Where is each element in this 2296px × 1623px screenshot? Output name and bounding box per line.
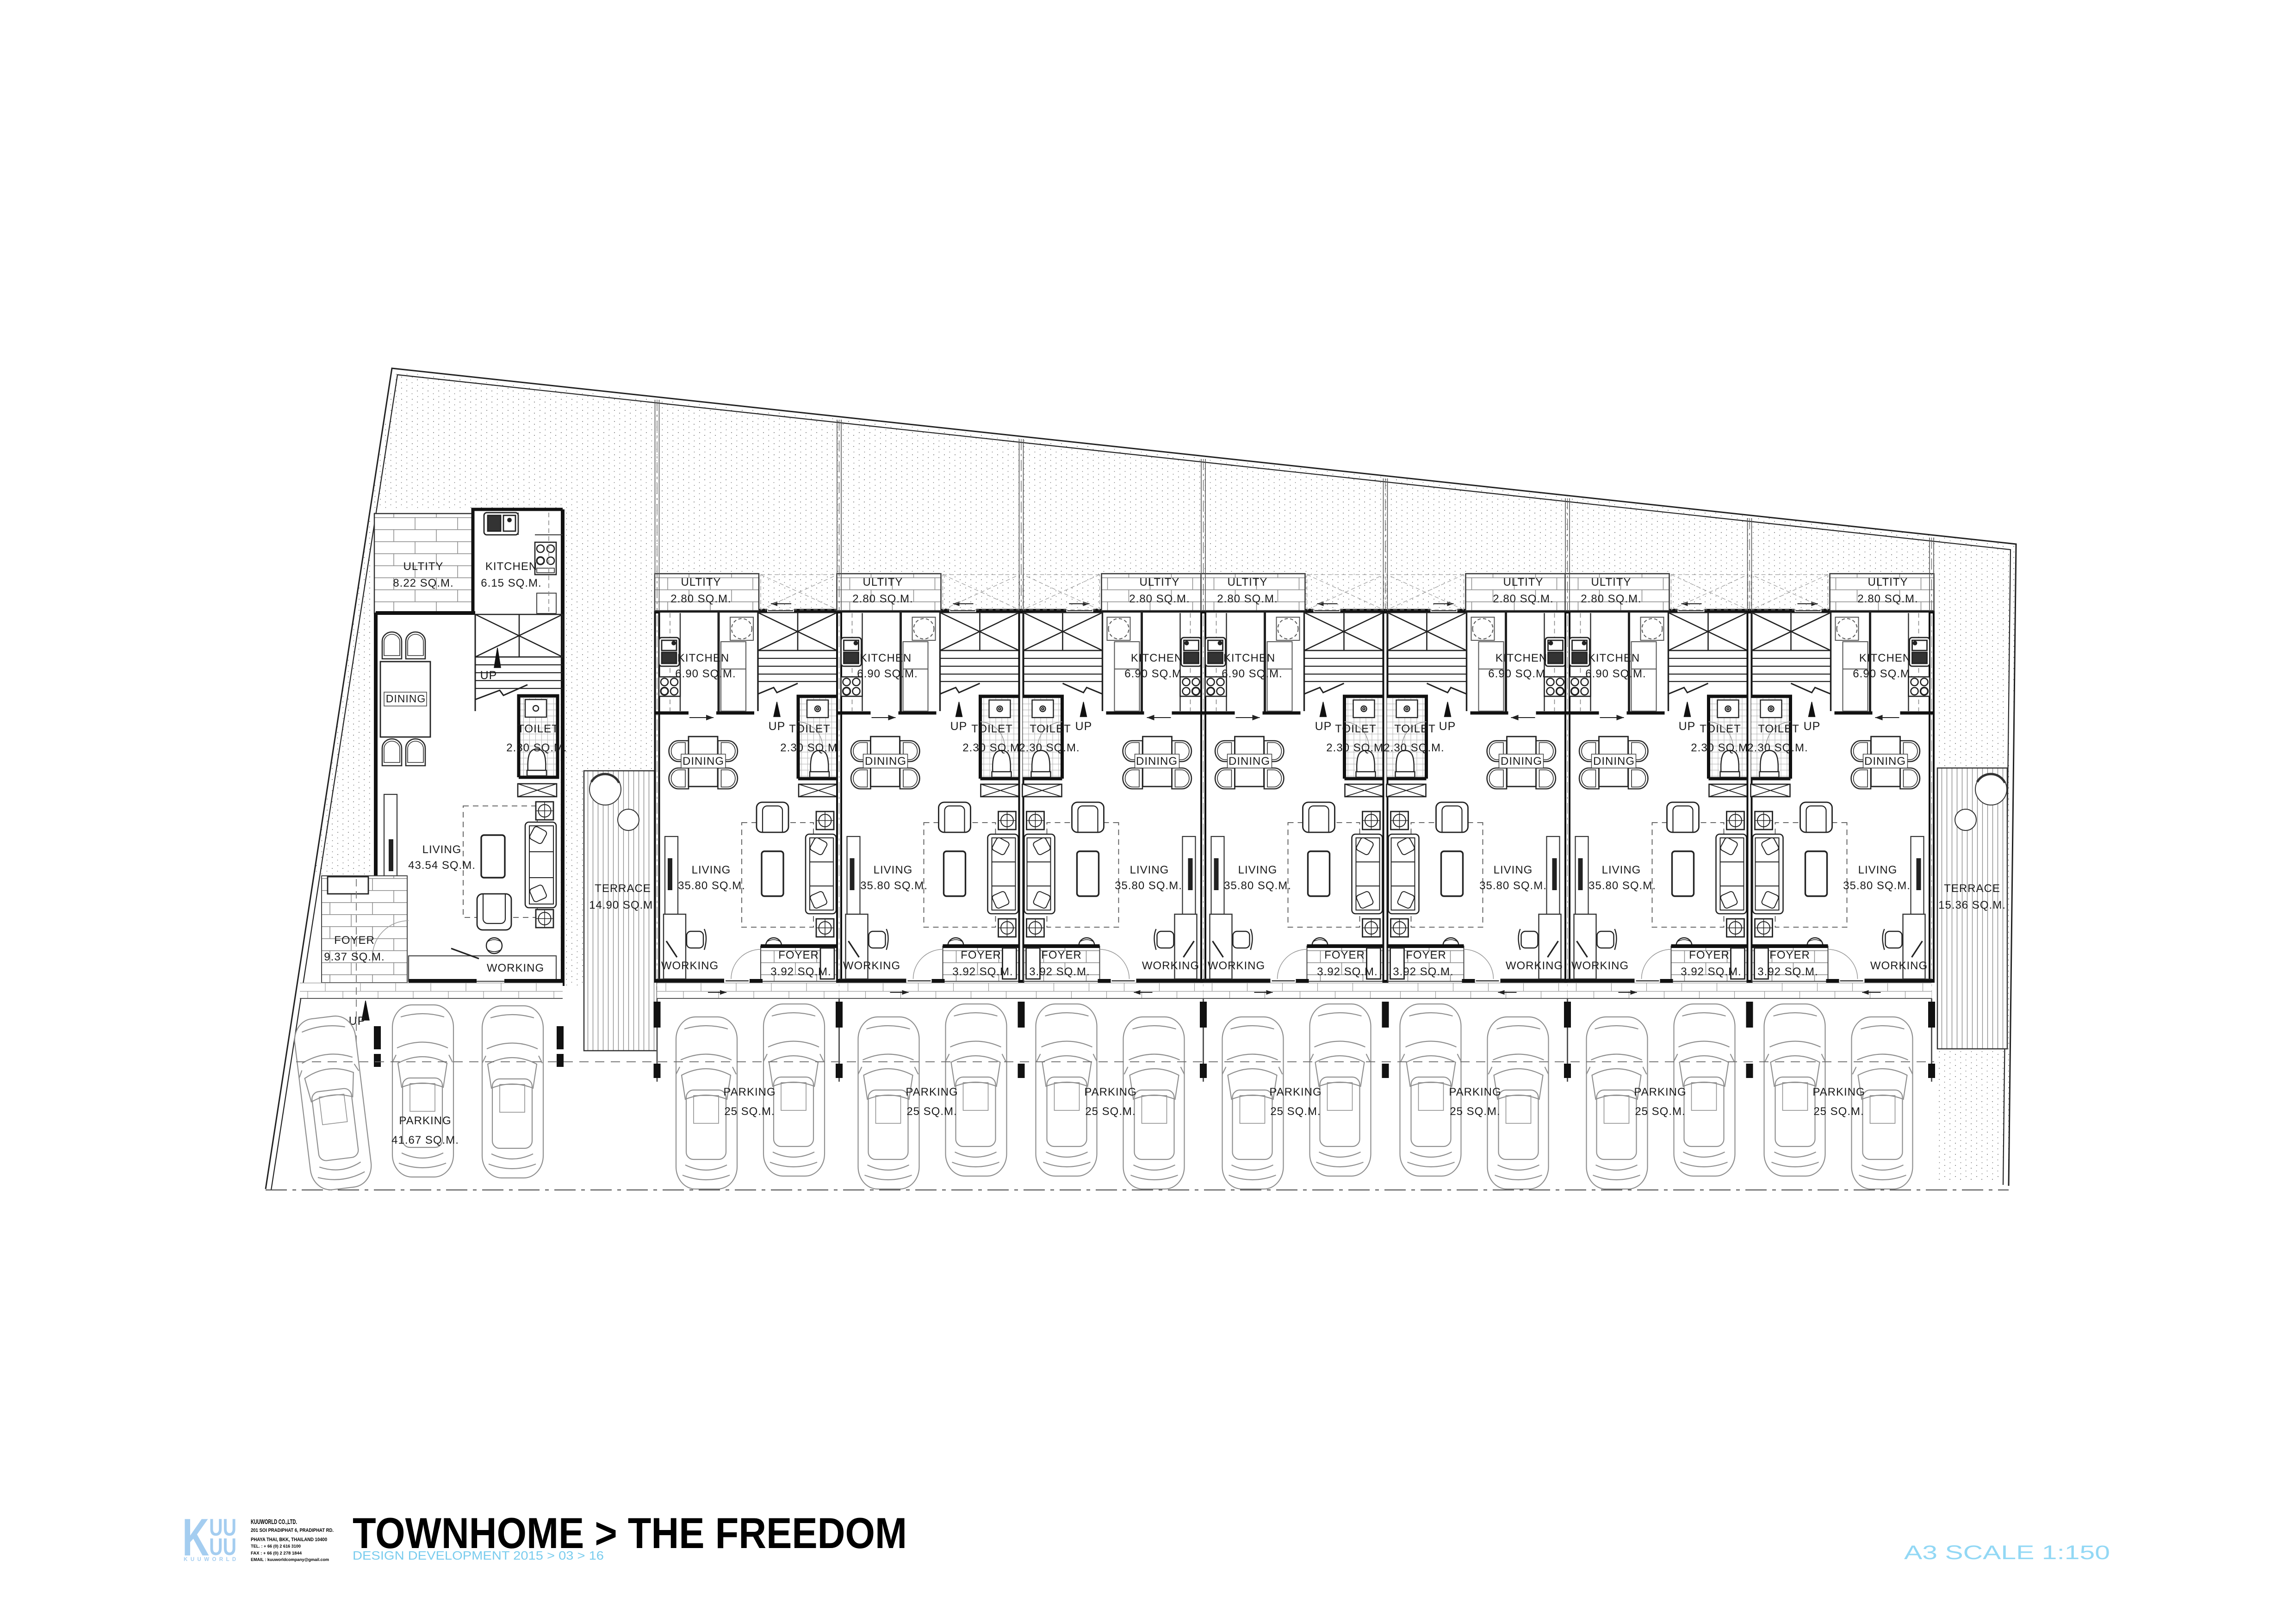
svg-text:TERRACE: TERRACE bbox=[595, 882, 651, 895]
svg-text:PARKING: PARKING bbox=[906, 1086, 958, 1098]
svg-text:25 SQ.M.: 25 SQ.M. bbox=[1450, 1105, 1500, 1118]
svg-text:201 SOI PRADIPHAT 6, PRADI: 201 SOI PRADIPHAT 6, PRADIPHAT RD. bbox=[251, 1528, 334, 1533]
svg-text:UP: UP bbox=[950, 720, 968, 733]
svg-text:WORKING: WORKING bbox=[661, 960, 719, 972]
svg-text:3.92 SQ.M.: 3.92 SQ.M. bbox=[770, 966, 831, 978]
svg-text:2.80 SQ.M.: 2.80 SQ.M. bbox=[1857, 593, 1918, 605]
svg-text:25 SQ.M.: 25 SQ.M. bbox=[1813, 1105, 1864, 1118]
svg-text:TOILET: TOILET bbox=[517, 723, 559, 735]
svg-text:9.37 SQ.M.: 9.37 SQ.M. bbox=[324, 951, 385, 963]
svg-text:ULTITY: ULTITY bbox=[863, 576, 903, 588]
svg-text:35.80 SQ.M.: 35.80 SQ.M. bbox=[860, 880, 928, 892]
svg-text:3.92 SQ.M.: 3.92 SQ.M. bbox=[1029, 966, 1090, 978]
svg-text:KUUWORLD CO.,LTD.: KUUWORLD CO.,LTD. bbox=[251, 1518, 297, 1526]
svg-text:UP: UP bbox=[769, 720, 786, 733]
svg-text:6.90 SQ.M.: 6.90 SQ.M. bbox=[857, 668, 918, 680]
svg-text:UP: UP bbox=[1315, 720, 1332, 733]
svg-text:EMAIL : kuuworldcompany@gmail.: EMAIL : kuuworldcompany@gmail.com bbox=[251, 1557, 329, 1562]
svg-text:DINING: DINING bbox=[1864, 755, 1906, 768]
svg-text:3.92 SQ.M.: 3.92 SQ.M. bbox=[1393, 966, 1453, 978]
svg-text:TOILET: TOILET bbox=[789, 723, 831, 735]
svg-text:ULTITY: ULTITY bbox=[1591, 576, 1632, 588]
svg-text:ULTITY: ULTITY bbox=[403, 560, 444, 573]
svg-text:LIVING: LIVING bbox=[1238, 864, 1278, 876]
svg-text:2.30 SQ.M.: 2.30 SQ.M. bbox=[1326, 742, 1387, 754]
svg-text:LIVING: LIVING bbox=[874, 864, 913, 876]
svg-text:WORKING: WORKING bbox=[1208, 960, 1265, 972]
svg-text:2.30 SQ.M.: 2.30 SQ.M. bbox=[1384, 742, 1444, 754]
svg-text:TOILET: TOILET bbox=[1394, 723, 1436, 735]
svg-text:KITCHEN: KITCHEN bbox=[677, 652, 729, 664]
svg-text:6.90 SQ.M.: 6.90 SQ.M. bbox=[1585, 668, 1646, 680]
svg-text:6.15 SQ.M.: 6.15 SQ.M. bbox=[481, 577, 541, 589]
svg-text:3.92 SQ.M.: 3.92 SQ.M. bbox=[1317, 966, 1378, 978]
svg-text:PARKING: PARKING bbox=[723, 1086, 776, 1098]
svg-text:UP: UP bbox=[1679, 720, 1696, 733]
svg-text:LIVING: LIVING bbox=[692, 864, 731, 876]
svg-text:PARKING: PARKING bbox=[1084, 1086, 1136, 1098]
svg-text:KITCHEN: KITCHEN bbox=[485, 560, 537, 573]
svg-text:2.30 SQ.M.: 2.30 SQ.M. bbox=[780, 742, 841, 754]
svg-text:KITCHEN: KITCHEN bbox=[1496, 652, 1547, 664]
svg-text:DINING: DINING bbox=[1229, 755, 1270, 768]
svg-text:25 SQ.M.: 25 SQ.M. bbox=[1635, 1105, 1685, 1118]
svg-text:6.90 SQ.M.: 6.90 SQ.M. bbox=[1853, 668, 1913, 680]
svg-text:FOYER: FOYER bbox=[778, 949, 819, 961]
svg-text:LIVING: LIVING bbox=[1602, 864, 1641, 876]
svg-text:UP: UP bbox=[1804, 720, 1821, 733]
svg-text:PARKING: PARKING bbox=[1269, 1086, 1322, 1098]
svg-text:UP: UP bbox=[1075, 720, 1092, 733]
svg-text:2.30 SQ.M.: 2.30 SQ.M. bbox=[1691, 742, 1751, 754]
svg-text:ULTITY: ULTITY bbox=[1140, 576, 1180, 588]
svg-text:35.80 SQ.M.: 35.80 SQ.M. bbox=[1479, 880, 1547, 892]
svg-text:ULTITY: ULTITY bbox=[1868, 576, 1908, 588]
svg-text:41.67 SQ.M.: 41.67 SQ.M. bbox=[391, 1134, 459, 1146]
svg-text:6.90 SQ.M.: 6.90 SQ.M. bbox=[1124, 668, 1185, 680]
svg-text:TOILET: TOILET bbox=[1335, 723, 1377, 735]
svg-text:LIVING: LIVING bbox=[1130, 864, 1169, 876]
svg-text:DESIGN DEVELOPMENT 2015 >: DESIGN DEVELOPMENT 2015 > 03 > 16 bbox=[353, 1549, 604, 1562]
svg-text:KITCHEN: KITCHEN bbox=[1588, 652, 1640, 664]
svg-text:PARKING: PARKING bbox=[1812, 1086, 1865, 1098]
svg-text:DINING: DINING bbox=[1501, 755, 1542, 768]
svg-text:35.80 SQ.M.: 35.80 SQ.M. bbox=[1115, 880, 1182, 892]
svg-text:FOYER: FOYER bbox=[1406, 949, 1446, 961]
svg-text:TERRACE: TERRACE bbox=[1944, 882, 2000, 895]
svg-text:FOYER: FOYER bbox=[1769, 949, 1810, 961]
svg-text:2.30 SQ.M.: 2.30 SQ.M. bbox=[1019, 742, 1080, 754]
svg-text:PHAYA THAI, BKK, THAILAND: PHAYA THAI, BKK, THAILAND 10400 bbox=[251, 1537, 327, 1542]
svg-text:6.90 SQ.M.: 6.90 SQ.M. bbox=[675, 668, 736, 680]
svg-text:FAX : + 66 (0) 2 278 1844: FAX : + 66 (0) 2 278 1844 bbox=[251, 1551, 302, 1556]
svg-text:TEL. : + 66 (0) 2 616 3100: TEL. : + 66 (0) 2 616 3100 bbox=[251, 1544, 301, 1549]
svg-text:TOILET: TOILET bbox=[1030, 723, 1071, 735]
svg-text:2.80 SQ.M.: 2.80 SQ.M. bbox=[1493, 593, 1553, 605]
svg-text:25 SQ.M.: 25 SQ.M. bbox=[906, 1105, 957, 1118]
svg-text:2.80 SQ.M.: 2.80 SQ.M. bbox=[852, 593, 913, 605]
svg-text:UP: UP bbox=[1439, 720, 1456, 733]
svg-text:43.54 SQ.M.: 43.54 SQ.M. bbox=[408, 859, 476, 872]
svg-text:FOYER: FOYER bbox=[1324, 949, 1365, 961]
svg-text:DINING: DINING bbox=[683, 755, 724, 768]
svg-text:TOILET: TOILET bbox=[1758, 723, 1800, 735]
svg-text:PARKING: PARKING bbox=[1634, 1086, 1686, 1098]
svg-text:LIVING: LIVING bbox=[1858, 864, 1898, 876]
svg-text:2.30 SQ.M.: 2.30 SQ.M. bbox=[1747, 742, 1808, 754]
svg-text:35.80 SQ.M.: 35.80 SQ.M. bbox=[1589, 880, 1656, 892]
svg-text:KITCHEN: KITCHEN bbox=[1131, 652, 1183, 664]
svg-text:K U U W O R L D: K U U W O R L D bbox=[184, 1557, 236, 1562]
svg-text:WORKING: WORKING bbox=[843, 960, 900, 972]
svg-text:3.92 SQ.M.: 3.92 SQ.M. bbox=[952, 966, 1013, 978]
svg-text:FOYER: FOYER bbox=[961, 949, 1001, 961]
svg-text:FOYER: FOYER bbox=[334, 934, 375, 947]
svg-text:A3 SCALE 1:150: A3 SCALE 1:150 bbox=[1904, 1542, 2110, 1564]
svg-text:ULTITY: ULTITY bbox=[681, 576, 721, 588]
svg-text:DINING: DINING bbox=[865, 755, 906, 768]
svg-text:WORKING: WORKING bbox=[1142, 960, 1199, 972]
svg-text:TOILET: TOILET bbox=[1700, 723, 1741, 735]
svg-text:LIVING: LIVING bbox=[1494, 864, 1533, 876]
svg-text:35.80 SQ.M.: 35.80 SQ.M. bbox=[1224, 880, 1291, 892]
svg-text:UP: UP bbox=[480, 669, 497, 682]
svg-text:2.80 SQ.M.: 2.80 SQ.M. bbox=[1129, 593, 1190, 605]
svg-text:DINING: DINING bbox=[386, 693, 426, 705]
svg-text:2.30 SQ.M.: 2.30 SQ.M. bbox=[506, 742, 567, 754]
svg-text:25 SQ.M.: 25 SQ.M. bbox=[1085, 1105, 1136, 1118]
svg-text:25 SQ.M.: 25 SQ.M. bbox=[724, 1105, 775, 1118]
svg-text:2.80 SQ.M.: 2.80 SQ.M. bbox=[1581, 593, 1641, 605]
svg-text:35.80 SQ.M.: 35.80 SQ.M. bbox=[1843, 880, 1911, 892]
svg-text:KITCHEN: KITCHEN bbox=[860, 652, 912, 664]
svg-text:KITCHEN: KITCHEN bbox=[1859, 652, 1911, 664]
svg-text:35.80 SQ.M.: 35.80 SQ.M. bbox=[678, 880, 745, 892]
svg-text:25 SQ.M.: 25 SQ.M. bbox=[1270, 1105, 1321, 1118]
svg-text:8.22 SQ.M.: 8.22 SQ.M. bbox=[393, 577, 453, 589]
svg-text:WORKING: WORKING bbox=[1870, 960, 1928, 972]
svg-text:6.90 SQ.M.: 6.90 SQ.M. bbox=[1488, 668, 1549, 680]
svg-text:PARKING: PARKING bbox=[399, 1115, 451, 1127]
svg-text:KITCHEN: KITCHEN bbox=[1223, 652, 1275, 664]
svg-text:2.80 SQ.M.: 2.80 SQ.M. bbox=[1217, 593, 1278, 605]
svg-text:15.36 SQ.M.: 15.36 SQ.M. bbox=[1938, 899, 2006, 911]
svg-text:14.90 SQ.M.: 14.90 SQ.M. bbox=[589, 899, 657, 911]
svg-text:2.80 SQ.M.: 2.80 SQ.M. bbox=[670, 593, 731, 605]
svg-text:ULTITY: ULTITY bbox=[1228, 576, 1268, 588]
svg-text:WORKING: WORKING bbox=[1571, 960, 1629, 972]
svg-text:WORKING: WORKING bbox=[1506, 960, 1563, 972]
svg-text:3.92 SQ.M.: 3.92 SQ.M. bbox=[1757, 966, 1818, 978]
svg-text:FOYER: FOYER bbox=[1041, 949, 1082, 961]
svg-text:LIVING: LIVING bbox=[422, 843, 462, 856]
svg-text:2.30 SQ.M.: 2.30 SQ.M. bbox=[962, 742, 1023, 754]
svg-text:ULTITY: ULTITY bbox=[1503, 576, 1544, 588]
svg-text:DINING: DINING bbox=[1136, 755, 1178, 768]
svg-text:DINING: DINING bbox=[1593, 755, 1635, 768]
svg-text:WORKING: WORKING bbox=[487, 962, 544, 974]
svg-text:PARKING: PARKING bbox=[1449, 1086, 1501, 1098]
svg-text:3.92 SQ.M.: 3.92 SQ.M. bbox=[1681, 966, 1741, 978]
svg-text:6.90 SQ.M.: 6.90 SQ.M. bbox=[1222, 668, 1282, 680]
svg-text:FOYER: FOYER bbox=[1689, 949, 1730, 961]
svg-text:TOILET: TOILET bbox=[971, 723, 1013, 735]
